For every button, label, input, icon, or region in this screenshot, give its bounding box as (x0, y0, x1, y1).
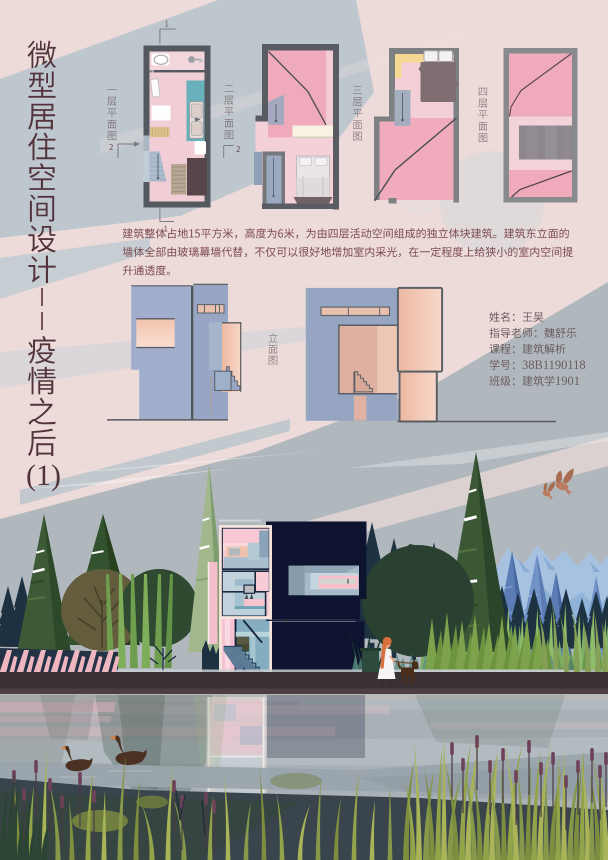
svg-text:38B1190118: 38B1190118 (522, 358, 586, 372)
svg-text:1901: 1901 (555, 374, 580, 388)
svg-text:(1): (1) (26, 459, 61, 492)
